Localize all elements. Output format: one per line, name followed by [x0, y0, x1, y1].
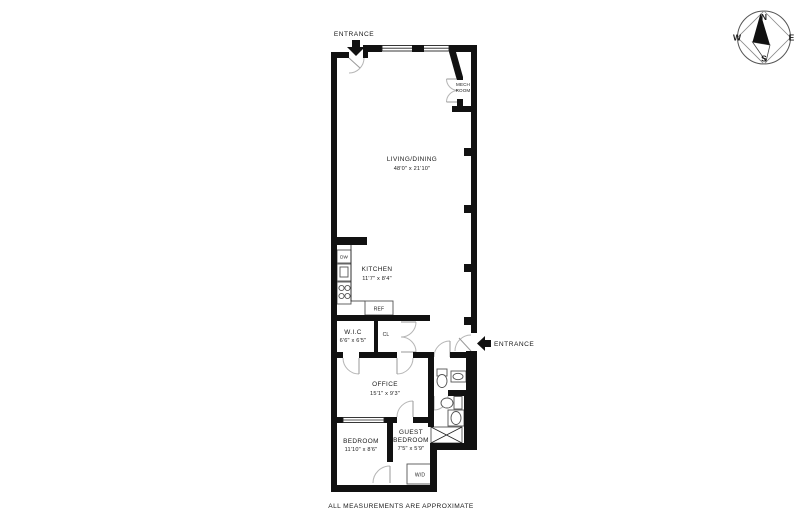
wic-dims: 6'6" x 6'5" — [340, 338, 367, 344]
mech-room-label-1: MECH — [456, 82, 470, 87]
guest-bedroom-dims: 7'5" x 5'9" — [398, 446, 425, 452]
floor-plan-canvas: N E S W ENTRANCE ENTRANCE LIVING/DINING … — [0, 0, 800, 532]
kitchen-label: KITCHEN — [362, 266, 393, 273]
floorplan-page: { "meta": { "disclaimer": "ALL MEASUREME… — [0, 0, 800, 532]
wic-label: W.I.C — [344, 329, 362, 336]
entrance-top-arrow-icon — [347, 40, 365, 56]
stove-icon — [337, 282, 351, 304]
bedroom-dims: 11'10" x 8'6" — [345, 447, 378, 453]
guest-bedroom-label-2: BEDROOM — [393, 437, 429, 444]
office-label: OFFICE — [372, 381, 398, 388]
compass-east-label: E — [789, 33, 795, 43]
toilet-icon — [451, 371, 466, 382]
living-dining-dims: 48'0" x 21'10" — [394, 166, 431, 172]
bathroom-sink-icon — [448, 410, 464, 426]
compass-icon: N E S W — [733, 11, 795, 64]
disclaimer-text: ALL MEASUREMENTS ARE APPROXIMATE — [328, 503, 474, 510]
powder-room-fixtures — [437, 369, 466, 388]
entrance-top-label: ENTRANCE — [334, 31, 374, 38]
mech-room-label-2: ROOM — [456, 88, 471, 93]
compass-west-label: W — [733, 33, 742, 43]
toilet-icon — [441, 397, 462, 410]
dishwasher-label: DW — [340, 255, 348, 260]
entrance-side-label: ENTRANCE — [494, 341, 534, 348]
kitchen-dims: 11'7" x 8'4" — [362, 276, 392, 282]
guest-bathroom-fixtures — [431, 397, 464, 444]
guest-bedroom-label-1: GUEST — [399, 429, 423, 436]
kitchen-sink-icon — [337, 264, 351, 281]
closet-label: CL — [383, 332, 390, 338]
refrigerator-label: REF — [374, 307, 385, 313]
office-dims: 15'1" x 9'3" — [370, 391, 400, 397]
bedroom-label: BEDROOM — [343, 438, 379, 445]
bedroom-window — [343, 418, 384, 423]
compass-south-label: S — [761, 54, 767, 64]
counter-line — [351, 245, 365, 301]
living-dining-label: LIVING/DINING — [387, 156, 437, 163]
compass-north-label: N — [761, 12, 767, 22]
shaft-icon — [431, 427, 462, 443]
entrance-side-arrow-icon — [477, 336, 491, 351]
pedestal-sink-icon — [437, 369, 447, 388]
living-room-window — [382, 45, 449, 52]
washer-dryer-label: W/D — [415, 473, 426, 479]
